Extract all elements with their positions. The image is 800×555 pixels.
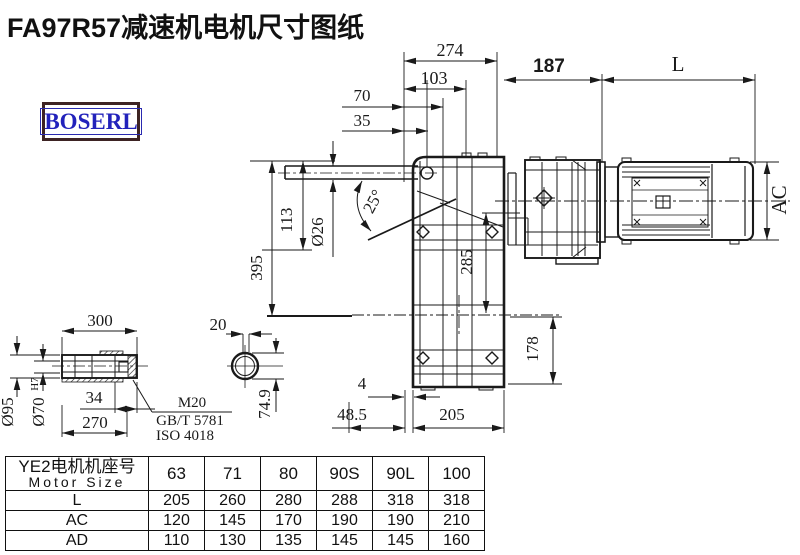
bolt-symbol	[417, 352, 429, 364]
label-iso4018: ISO 4018	[156, 428, 214, 444]
dim-178: 178	[523, 336, 542, 362]
label-m20: M20	[178, 395, 206, 411]
dim-34: 34	[86, 388, 104, 407]
table-cell: 120	[149, 511, 205, 531]
bolt-symbol	[417, 226, 429, 238]
table-cell: 63	[149, 457, 205, 491]
dim-dia70-tolerance: H7	[29, 377, 41, 391]
dim-L: L	[672, 52, 685, 76]
table-cell: 145	[373, 531, 429, 551]
dimension-lines	[10, 52, 779, 437]
table-cell: 318	[429, 491, 485, 511]
motor-side-view	[495, 157, 790, 264]
dim-74-9: 74.9	[255, 389, 274, 419]
dim-103: 103	[421, 68, 448, 88]
row-label: L	[6, 491, 149, 511]
bolt-symbol	[486, 226, 498, 238]
dim-70: 70	[354, 86, 371, 105]
table-cell: 145	[205, 511, 261, 531]
table-cell: 260	[205, 491, 261, 511]
table-cell: 288	[317, 491, 373, 511]
dimension-labels: 274 103 70 35 187 L AC 395 113 Ø26 25° 2…	[0, 40, 791, 444]
table-cell: 280	[261, 491, 317, 511]
dim-48-5: 48.5	[337, 405, 367, 424]
dim-35: 35	[354, 111, 371, 130]
dim-285: 285	[457, 249, 476, 275]
dim-4: 4	[358, 374, 367, 393]
hollow-shaft-detail	[52, 351, 148, 382]
dim-205: 205	[439, 405, 465, 424]
table-cell: 71	[205, 457, 261, 491]
table-header-label: YE2电机机座号 Motor Size	[6, 457, 149, 491]
table-cell: 160	[429, 531, 485, 551]
table-cell: 205	[149, 491, 205, 511]
dim-dia26: Ø26	[308, 217, 327, 246]
dim-dia70: Ø70	[29, 397, 48, 426]
motor-size-label-en: Motor Size	[6, 475, 148, 490]
table-cell: 210	[429, 511, 485, 531]
table-cell: 90S	[317, 457, 373, 491]
dim-274: 274	[437, 40, 464, 60]
row-label: AD	[6, 531, 149, 551]
table-cell: 80	[261, 457, 317, 491]
table-cell: 170	[261, 511, 317, 531]
table-cell: 318	[373, 491, 429, 511]
table-header-row: YE2电机机座号 Motor Size 63 71 80 90S 90L 100	[6, 457, 485, 491]
dim-AC: AC	[767, 185, 791, 214]
dim-dia95: Ø95	[0, 397, 17, 426]
bolt-symbol	[486, 352, 498, 364]
dim-395: 395	[247, 255, 266, 281]
table-cell: 190	[317, 511, 373, 531]
table-cell: 135	[261, 531, 317, 551]
table-cell: 190	[373, 511, 429, 531]
table-cell: 145	[317, 531, 373, 551]
table-cell: 110	[149, 531, 205, 551]
dim-113: 113	[277, 208, 296, 233]
dim-20: 20	[210, 315, 227, 334]
table-cell: 130	[205, 531, 261, 551]
dim-187: 187	[533, 56, 565, 77]
dim-300: 300	[87, 311, 113, 330]
table-row: L 205 260 280 288 318 318	[6, 491, 485, 511]
label-gbt5781: GB/T 5781	[156, 413, 224, 429]
table-cell: 90L	[373, 457, 429, 491]
table-row: AC 120 145 170 190 190 210	[6, 511, 485, 531]
shaft-cross-section	[227, 345, 283, 388]
table-row: AD 110 130 135 145 145 160	[6, 531, 485, 551]
dim-270: 270	[82, 413, 108, 432]
row-label: AC	[6, 511, 149, 531]
motor-size-label-cn: YE2电机机座号	[6, 458, 148, 475]
dim-25deg: 25°	[359, 186, 387, 216]
table-cell: 100	[429, 457, 485, 491]
page: FA97R57减速机电机尺寸图纸 BOSERL	[0, 0, 800, 555]
motor-size-table: YE2电机机座号 Motor Size 63 71 80 90S 90L 100…	[5, 456, 485, 551]
